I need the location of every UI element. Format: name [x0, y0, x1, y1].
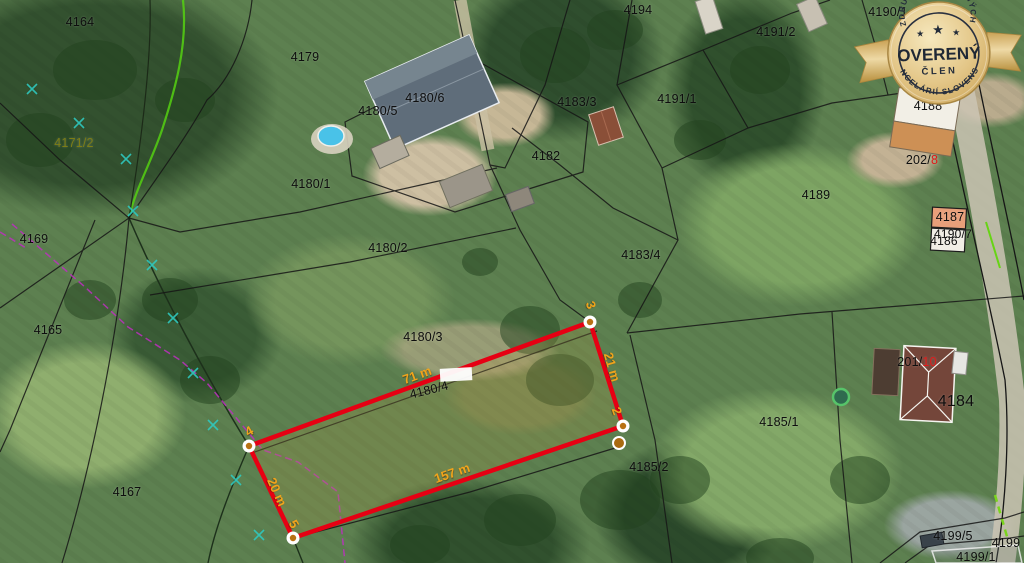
parcel-label-4189: 4189 — [802, 188, 831, 202]
parcel-label-4171-2: 4171/2 — [54, 136, 93, 150]
measurement-label-4: 4 — [242, 423, 256, 440]
parcel-label-4184: 4184 — [938, 393, 974, 411]
parcel-label-red-part: 8 — [931, 153, 938, 167]
star-icon: ★ — [932, 22, 944, 37]
aerial-cadastral-map: 416441794171/24169416541674180/64180/541… — [0, 0, 1024, 563]
parcel-label-202-8: 202/8 — [906, 153, 938, 167]
star-icon: ★ — [916, 28, 924, 38]
parcel-label-4185-1: 4185/1 — [759, 415, 798, 429]
badge-title: OVERENÝ — [897, 44, 981, 66]
parcel-label-4191-2: 4191/2 — [756, 25, 795, 39]
parcel-label-4199-5: 4199/5 — [933, 529, 972, 543]
parcel-label-201-10: 201/10 — [897, 355, 936, 369]
parcel-label-4199-1: 4199/1 — [956, 550, 995, 563]
measurement-label-3: 3 — [583, 299, 600, 311]
measurement-label-20-m: 20 m — [264, 475, 290, 508]
measurement-label-157-m: 157 m — [432, 460, 472, 486]
star-icon: ★ — [952, 27, 960, 37]
parcel-label-4164: 4164 — [66, 15, 95, 29]
parcel-label-4167: 4167 — [113, 485, 142, 499]
parcel-label-4179: 4179 — [291, 50, 320, 64]
parcel-label-4182: 4182 — [532, 149, 561, 163]
parcel-label-4186: 4186 — [930, 234, 958, 248]
verified-member-badge: ZDRUŽENIE REALITNÝCH ★ ★ ★ OVERENÝ ČLEN … — [851, 0, 1024, 119]
parcel-label-4183-3: 4183/3 — [557, 95, 596, 109]
measurement-label-2: 2 — [609, 405, 626, 417]
parcel-label-4165: 4165 — [34, 323, 63, 337]
measurement-label-21-m: 21 m — [601, 351, 624, 384]
parcel-label-4185-2: 4185/2 — [629, 460, 668, 474]
parcel-label-4180-1: 4180/1 — [291, 177, 330, 191]
parcel-label-4169: 4169 — [20, 232, 49, 246]
parcel-label-4199: 4199 — [992, 536, 1021, 550]
parcel-label-4187: 4187 — [936, 210, 965, 224]
parcel-label-4180-6: 4180/6 — [405, 91, 444, 105]
measurement-label-5: 5 — [286, 517, 303, 531]
parcel-label-4183-4: 4183/4 — [621, 248, 660, 262]
parcel-label-4194: 4194 — [624, 3, 653, 17]
badge-subtitle: ČLEN — [921, 64, 957, 77]
parcel-label-4191-1: 4191/1 — [657, 92, 696, 106]
parcel-label-red-part: 10 — [922, 355, 936, 369]
parcel-label-4180-5: 4180/5 — [358, 104, 397, 118]
parcel-label-4180-3: 4180/3 — [403, 330, 442, 344]
parcel-label-4180-2: 4180/2 — [368, 241, 407, 255]
